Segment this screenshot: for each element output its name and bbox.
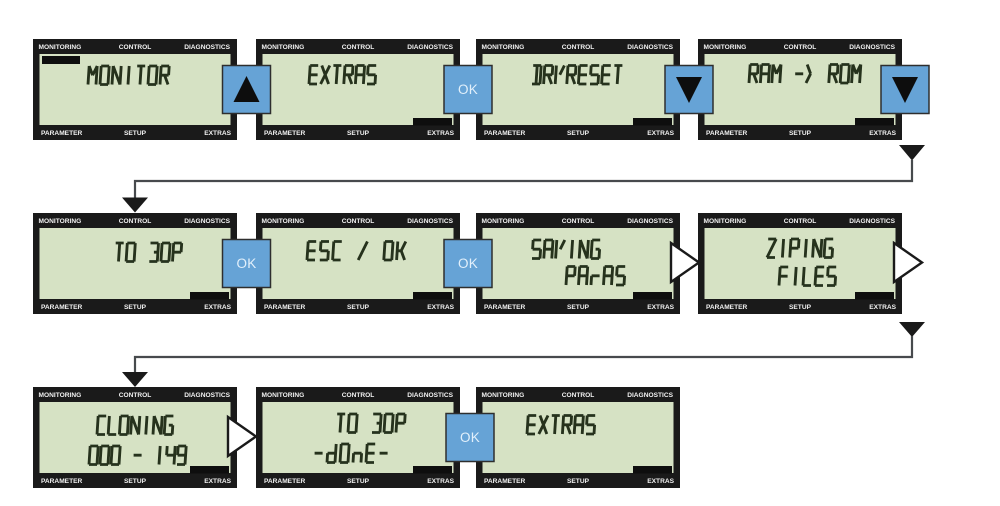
svg-text:DIAGNOSTICS: DIAGNOSTICS bbox=[627, 44, 673, 51]
svg-text:OK: OK bbox=[236, 256, 256, 271]
svg-text:SETUP: SETUP bbox=[124, 304, 147, 311]
svg-text:PARAMETER: PARAMETER bbox=[706, 130, 748, 137]
svg-text:MONITORING: MONITORING bbox=[39, 218, 82, 225]
svg-text:DIAGNOSTICS: DIAGNOSTICS bbox=[849, 218, 895, 225]
svg-text:EXTRAS: EXTRAS bbox=[427, 304, 454, 311]
svg-text:CONTROL: CONTROL bbox=[342, 218, 375, 225]
svg-text:CONTROL: CONTROL bbox=[784, 218, 817, 225]
svg-text:MONITORING: MONITORING bbox=[262, 392, 305, 399]
svg-text:SETUP: SETUP bbox=[347, 130, 370, 137]
svg-text:PARAMETER: PARAMETER bbox=[484, 130, 526, 137]
svg-text:MONITORING: MONITORING bbox=[39, 392, 82, 399]
svg-text:EXTRAS: EXTRAS bbox=[427, 130, 454, 137]
svg-text:SETUP: SETUP bbox=[567, 130, 590, 137]
svg-text:EXTRAS: EXTRAS bbox=[204, 478, 231, 485]
svg-text:PARAMETER: PARAMETER bbox=[484, 304, 526, 311]
svg-text:MONITORING: MONITORING bbox=[704, 218, 747, 225]
svg-text:MONITORING: MONITORING bbox=[704, 44, 747, 51]
svg-text:PARAMETER: PARAMETER bbox=[264, 304, 306, 311]
svg-text:DIAGNOSTICS: DIAGNOSTICS bbox=[407, 218, 453, 225]
svg-text:EXTRAS: EXTRAS bbox=[869, 304, 896, 311]
svg-text:SETUP: SETUP bbox=[789, 130, 812, 137]
svg-text:CONTROL: CONTROL bbox=[119, 218, 152, 225]
svg-text:CONTROL: CONTROL bbox=[784, 44, 817, 51]
svg-text:EXTRAS: EXTRAS bbox=[647, 478, 674, 485]
svg-text:PARAMETER: PARAMETER bbox=[264, 130, 306, 137]
svg-text:PARAMETER: PARAMETER bbox=[41, 478, 83, 485]
svg-text:DIAGNOSTICS: DIAGNOSTICS bbox=[184, 218, 230, 225]
svg-text:CONTROL: CONTROL bbox=[342, 44, 375, 51]
svg-text:MONITORING: MONITORING bbox=[482, 44, 525, 51]
svg-text:SETUP: SETUP bbox=[124, 478, 147, 485]
svg-text:EXTRAS: EXTRAS bbox=[204, 130, 231, 137]
svg-text:EXTRAS: EXTRAS bbox=[427, 478, 454, 485]
svg-text:MONITORING: MONITORING bbox=[39, 44, 82, 51]
svg-text:CONTROL: CONTROL bbox=[562, 218, 595, 225]
svg-text:CONTROL: CONTROL bbox=[562, 392, 595, 399]
svg-text:PARAMETER: PARAMETER bbox=[41, 130, 83, 137]
svg-text:DIAGNOSTICS: DIAGNOSTICS bbox=[627, 392, 673, 399]
svg-text:PARAMETER: PARAMETER bbox=[706, 304, 748, 311]
svg-text:PARAMETER: PARAMETER bbox=[41, 304, 83, 311]
svg-text:EXTRAS: EXTRAS bbox=[204, 304, 231, 311]
svg-text:DIAGNOSTICS: DIAGNOSTICS bbox=[407, 44, 453, 51]
svg-text:EXTRAS: EXTRAS bbox=[869, 130, 896, 137]
svg-text:SETUP: SETUP bbox=[567, 478, 590, 485]
svg-text:MONITORING: MONITORING bbox=[482, 392, 525, 399]
svg-text:SETUP: SETUP bbox=[567, 304, 590, 311]
svg-text:SETUP: SETUP bbox=[124, 130, 147, 137]
svg-text:PARAMETER: PARAMETER bbox=[484, 478, 526, 485]
svg-text:DIAGNOSTICS: DIAGNOSTICS bbox=[184, 392, 230, 399]
svg-text:DIAGNOSTICS: DIAGNOSTICS bbox=[184, 44, 230, 51]
svg-text:DIAGNOSTICS: DIAGNOSTICS bbox=[407, 392, 453, 399]
svg-text:OK: OK bbox=[460, 430, 480, 445]
svg-text:OK: OK bbox=[458, 256, 478, 271]
svg-text:MONITORING: MONITORING bbox=[482, 218, 525, 225]
svg-text:SETUP: SETUP bbox=[789, 304, 812, 311]
svg-text:CONTROL: CONTROL bbox=[119, 44, 152, 51]
svg-text:EXTRAS: EXTRAS bbox=[647, 304, 674, 311]
svg-text:OK: OK bbox=[458, 82, 478, 97]
svg-text:MONITORING: MONITORING bbox=[262, 218, 305, 225]
svg-text:PARAMETER: PARAMETER bbox=[264, 478, 306, 485]
svg-text:CONTROL: CONTROL bbox=[119, 392, 152, 399]
svg-text:SETUP: SETUP bbox=[347, 478, 370, 485]
svg-text:EXTRAS: EXTRAS bbox=[647, 130, 674, 137]
svg-text:SETUP: SETUP bbox=[347, 304, 370, 311]
svg-text:CONTROL: CONTROL bbox=[562, 44, 595, 51]
svg-text:MONITORING: MONITORING bbox=[262, 44, 305, 51]
svg-text:CONTROL: CONTROL bbox=[342, 392, 375, 399]
svg-text:DIAGNOSTICS: DIAGNOSTICS bbox=[849, 44, 895, 51]
svg-text:DIAGNOSTICS: DIAGNOSTICS bbox=[627, 218, 673, 225]
